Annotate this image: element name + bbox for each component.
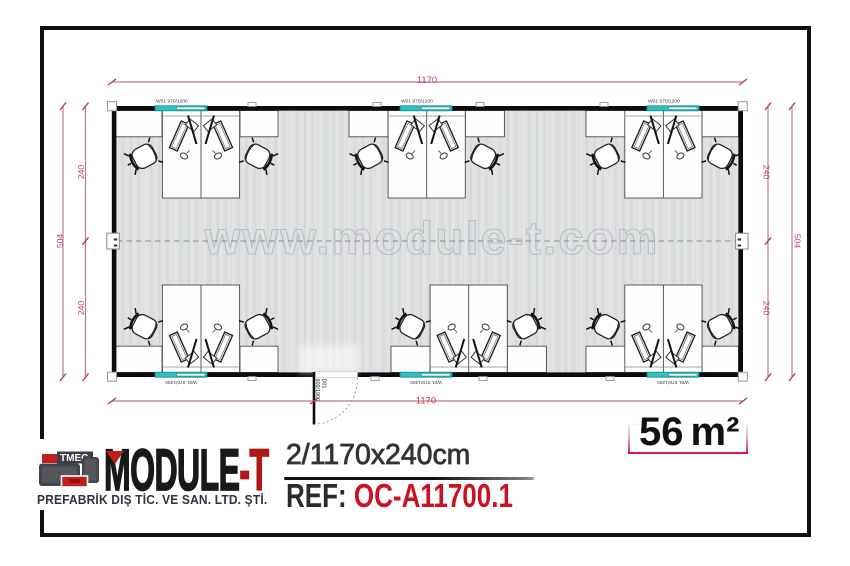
svg-text:504: 504 [55, 234, 65, 249]
svg-text:240: 240 [762, 165, 772, 180]
svg-text:1170: 1170 [416, 396, 436, 407]
svg-text:D01: D01 [321, 379, 327, 389]
svg-text:www.module-t.com: www.module-t.com [203, 212, 659, 264]
svg-text:240: 240 [76, 165, 86, 180]
svg-text:W01 970/1200: W01 970/1200 [156, 99, 188, 105]
svg-text:240: 240 [762, 301, 772, 316]
svg-text:W01 970/1200: W01 970/1200 [165, 379, 197, 385]
svg-text:W01 970/1200: W01 970/1200 [657, 379, 689, 385]
svg-text:W01 970/1200: W01 970/1200 [401, 99, 433, 105]
svg-text:504: 504 [793, 234, 803, 249]
svg-text:W01 970/1200: W01 970/1200 [410, 379, 442, 385]
svg-text:1170: 1170 [417, 75, 437, 86]
svg-text:W01 970/1200: W01 970/1200 [648, 99, 680, 105]
svg-text:240: 240 [76, 301, 86, 316]
svg-text:900/1900: 900/1900 [314, 379, 320, 401]
